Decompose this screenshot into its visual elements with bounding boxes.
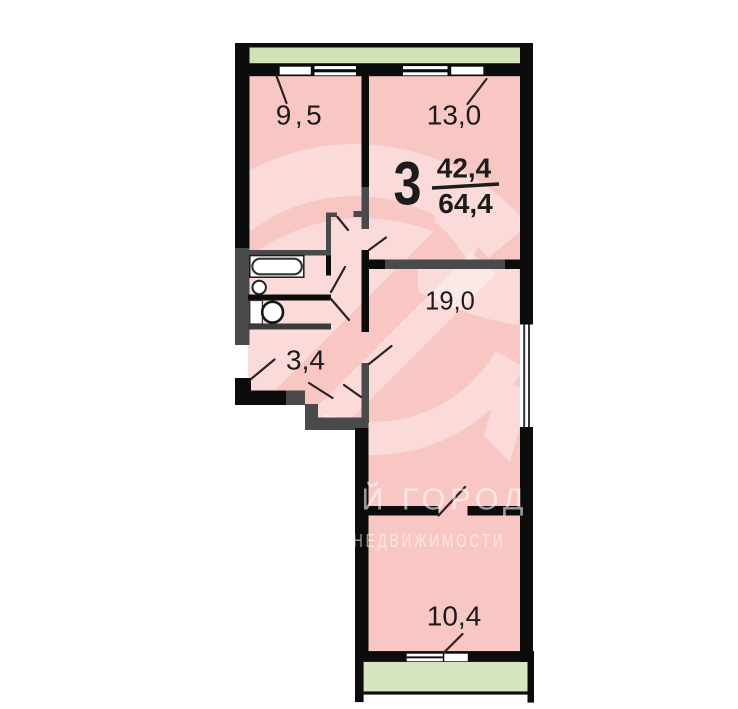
- svg-text:19,0: 19,0: [425, 288, 475, 316]
- svg-text:42,4: 42,4: [437, 153, 492, 184]
- svg-text:3,4: 3,4: [286, 345, 325, 376]
- svg-text:10,4: 10,4: [427, 601, 482, 632]
- svg-text:64,4: 64,4: [438, 188, 493, 219]
- svg-text:НЕДВИЖИМОСТИ: НЕДВИЖИМОСТИ: [353, 530, 506, 551]
- svg-text:9,5: 9,5: [276, 100, 325, 131]
- svg-text:Й ГОРОД: Й ГОРОД: [362, 481, 529, 517]
- svg-text:3: 3: [394, 150, 422, 218]
- svg-text:13,0: 13,0: [427, 100, 482, 131]
